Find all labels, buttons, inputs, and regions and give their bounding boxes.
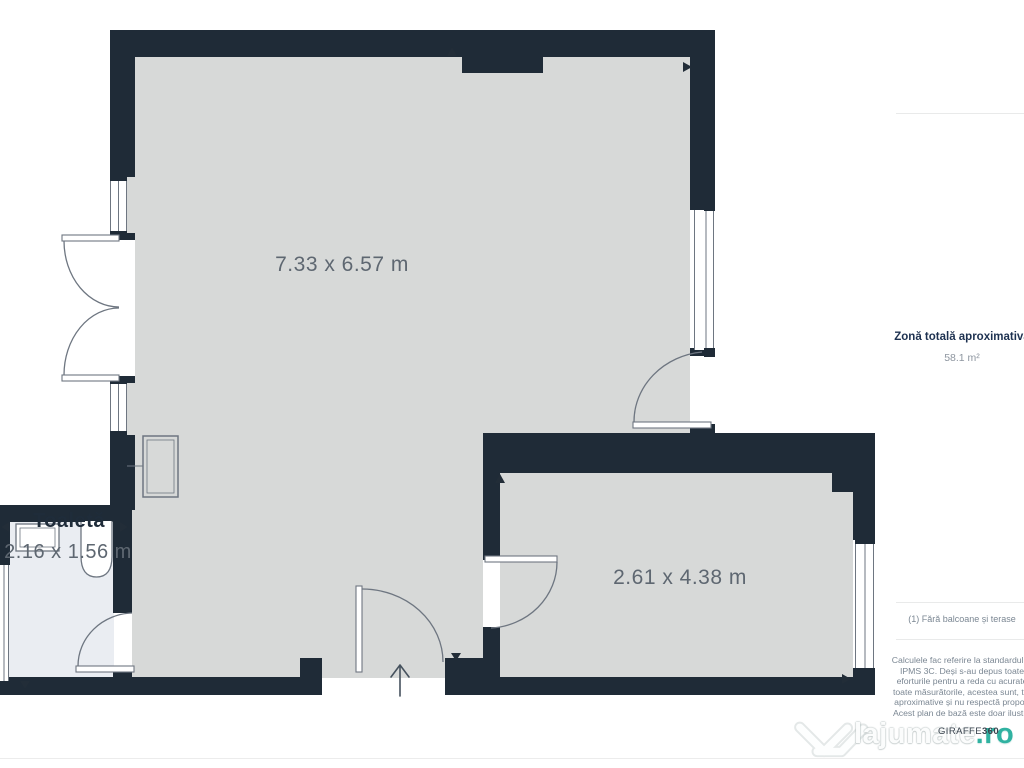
area-footnote: (1) Fără balcoane și terase bbox=[872, 614, 1024, 624]
second-room-dimensions: 2.61 x 4.38 m bbox=[578, 566, 782, 590]
lajumate-watermark: lajumate.ro bbox=[792, 712, 1024, 768]
disclaimer-line: eforturile pentru a reda cu acurate bbox=[872, 676, 1024, 687]
toilet-room-dimensions: 2.16 x 1.56 m bbox=[0, 541, 137, 564]
disclaimer-line: toate măsurătorile, acestea sunt, tot bbox=[872, 687, 1024, 698]
floor-plan bbox=[0, 0, 881, 768]
brand-number: 360 bbox=[982, 726, 999, 737]
window-room2-right bbox=[855, 536, 875, 668]
disclaimer-line: Calculele fac referire la standardul R bbox=[872, 655, 1024, 666]
sidebar-rule-top bbox=[896, 113, 1024, 114]
toilet-room-name: Toaletă bbox=[4, 510, 134, 533]
sidebar-rule-mid2 bbox=[896, 639, 1024, 640]
disclaimer-text: Calculele fac referire la standardul R I… bbox=[872, 655, 1024, 719]
total-area-value: 58.1 m² bbox=[872, 352, 1024, 364]
disclaimer-line: IPMS 3C. Deși s-au depus toate bbox=[872, 666, 1024, 677]
main-room-dimensions: 7.33 x 6.57 m bbox=[240, 253, 444, 277]
giraffe360-brand: GIRAFFE360 bbox=[938, 726, 999, 737]
window-right-main bbox=[694, 202, 715, 357]
disclaimer-line: aproximative și nu respectă proporț bbox=[872, 697, 1024, 708]
brand-name: GIRAFFE bbox=[938, 726, 982, 737]
total-area-label: Zonă totală aproximativă bbox=[872, 331, 1024, 343]
window-left-upper bbox=[110, 174, 127, 238]
sidebar-rule-mid1 bbox=[896, 602, 1024, 603]
info-sidebar bbox=[881, 0, 1024, 768]
window-left-lower bbox=[110, 377, 127, 437]
window-toilet-left bbox=[0, 558, 10, 681]
